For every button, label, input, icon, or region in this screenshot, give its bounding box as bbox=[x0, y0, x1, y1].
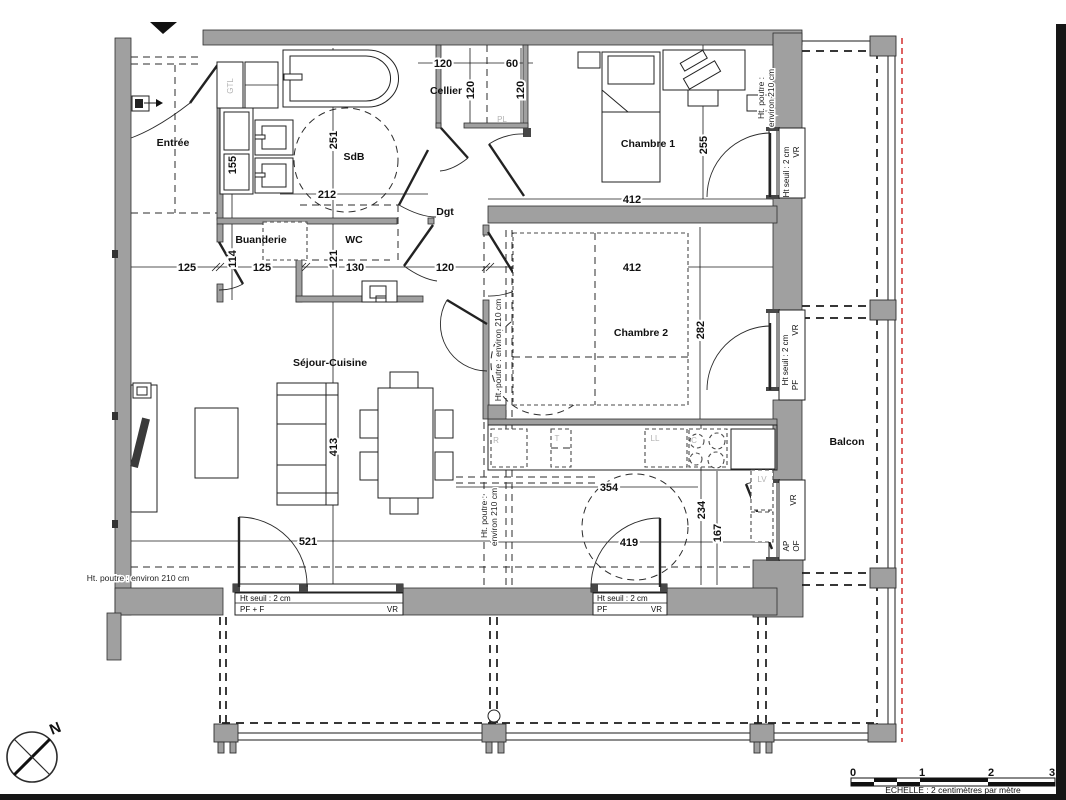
fridge-label: R bbox=[493, 436, 499, 445]
window3-of-label: OF bbox=[792, 540, 801, 551]
window3-ap-label: AP bbox=[782, 541, 791, 552]
dim-cellier-60: 60 bbox=[506, 58, 518, 70]
room-label-sejour: Séjour-Cuisine bbox=[293, 357, 367, 369]
sejour-window-sill-label: Ht seuil : 2 cm bbox=[240, 594, 291, 603]
dim-cellier-v1: 120 bbox=[465, 81, 477, 99]
doors bbox=[131, 63, 524, 371]
dim-entree-placard: 155 bbox=[227, 156, 239, 174]
cooktop-label: C bbox=[691, 436, 697, 445]
cuisine-window-type-label: PF bbox=[597, 605, 607, 614]
scale-bar: 0 1 2 3 ECHELLE : 2 centimètres par mètr… bbox=[850, 767, 1055, 795]
pl-label: PL bbox=[497, 115, 507, 124]
dim-sdb-depth: 251 bbox=[328, 131, 340, 149]
dim-cuisine-234: 234 bbox=[696, 500, 708, 519]
dim-buanderie-114: 114 bbox=[227, 249, 239, 268]
window-right-1: VR Ht seuil : 2 cm bbox=[707, 127, 805, 199]
entrance-arrow-icon bbox=[150, 22, 177, 34]
beam-note-ch1-l1: Ht. poutre : bbox=[756, 77, 766, 119]
gtl-label: GTL bbox=[226, 78, 235, 94]
room-label-chambre2: Chambre 2 bbox=[614, 327, 668, 339]
scale-caption: ECHELLE : 2 centimètres par mètre bbox=[885, 785, 1021, 795]
entry-symbol bbox=[132, 96, 163, 111]
chambre2-wardrobe-zone bbox=[513, 233, 688, 405]
beam-note-sejour: Ht. poutre : environ 210 cm bbox=[87, 573, 190, 583]
walls bbox=[107, 30, 803, 660]
entry-wardrobe bbox=[220, 108, 253, 194]
cuisine-window-vr-label: VR bbox=[651, 605, 662, 614]
dim-cuisine-354: 354 bbox=[600, 482, 619, 494]
dim-sdb-width: 212 bbox=[318, 189, 336, 201]
dim-ch2-width: 412 bbox=[623, 262, 641, 274]
room-label-chambre1: Chambre 1 bbox=[621, 138, 675, 150]
dim-cuisine-167: 167 bbox=[712, 524, 724, 542]
window3-vr-label: VR bbox=[789, 494, 798, 505]
chambre1-furniture bbox=[578, 48, 771, 182]
dim-ch2-depth: 282 bbox=[695, 321, 707, 339]
window-right-2: VR Ht seuil : 2 cm PF bbox=[707, 309, 805, 400]
scale-tick-3: 3 bbox=[1049, 767, 1055, 779]
dim-wc-121: 121 bbox=[328, 250, 340, 268]
floor-plan-page: VR Ht seuil : 2 cm VR Ht seuil : 2 cm PF… bbox=[0, 0, 1066, 800]
beam-note-cuisine-l1: Ht. poutre : bbox=[479, 496, 489, 538]
washer-label: LL bbox=[651, 434, 660, 443]
room-label-cellier: Cellier bbox=[430, 85, 462, 97]
compass-icon: N bbox=[7, 719, 64, 782]
north-label: N bbox=[47, 719, 63, 739]
beam-note-ch1-l2: environ 210 cm bbox=[766, 69, 776, 127]
beam-note-ch2: Ht. poutre : environ 210 cm bbox=[493, 299, 503, 402]
double-washbasin bbox=[255, 120, 293, 193]
dim-sejour-depth: 413 bbox=[328, 438, 340, 456]
sejour-window-type-label: PF + F bbox=[240, 605, 264, 614]
kitchen-sink bbox=[731, 429, 775, 469]
window-bottom-sejour: Ht seuil : 2 cm PF + F VR bbox=[233, 517, 403, 615]
room-label-sdb: SdB bbox=[344, 151, 365, 163]
window1-sill-label: Ht seuil : 2 cm bbox=[782, 146, 791, 197]
room-label-balcon: Balcon bbox=[829, 436, 864, 448]
window2-vr-label: VR bbox=[791, 324, 800, 335]
window2-sill-label: Ht seuil : 2 cm bbox=[781, 334, 790, 385]
sejour-window-vr-label: VR bbox=[387, 605, 398, 614]
sejour-furniture bbox=[130, 372, 453, 514]
room-label-wc: WC bbox=[345, 234, 363, 246]
dim-ch1-width: 412 bbox=[623, 194, 641, 206]
dim-row-130: 130 bbox=[346, 262, 364, 274]
dim-row-125b: 125 bbox=[253, 262, 271, 274]
scale-tick-2: 2 bbox=[988, 767, 994, 779]
dim-row-125a: 125 bbox=[178, 262, 196, 274]
floor-plan-drawing: VR Ht seuil : 2 cm VR Ht seuil : 2 cm PF… bbox=[0, 0, 1066, 800]
dim-row-120: 120 bbox=[436, 262, 454, 274]
dim-cellier-v2: 120 bbox=[515, 81, 527, 99]
window2-pf-label: PF bbox=[791, 380, 800, 390]
window1-vr-label: VR bbox=[792, 146, 801, 157]
toilet bbox=[362, 281, 397, 302]
gtl-closet: GTL bbox=[217, 62, 278, 108]
t-label: T bbox=[555, 434, 560, 443]
room-label-dgt: Dgt bbox=[436, 206, 454, 218]
dim-ch1-depth: 255 bbox=[698, 136, 710, 154]
scale-tick-0: 0 bbox=[850, 767, 856, 779]
dim-sejour-width: 521 bbox=[299, 536, 317, 548]
beam-note-cuisine-l2: environ 210 cm bbox=[489, 488, 499, 546]
dishwasher-label: LV bbox=[757, 475, 767, 484]
bathtub bbox=[283, 50, 399, 107]
room-label-entree: Entrée bbox=[157, 137, 190, 149]
scale-tick-1: 1 bbox=[919, 767, 925, 779]
dim-cellier-top: 120 bbox=[434, 58, 452, 70]
room-label-buanderie: Buanderie bbox=[235, 234, 287, 246]
dim-cuisine-419: 419 bbox=[620, 537, 638, 549]
cuisine-window-sill-label: Ht seuil : 2 cm bbox=[597, 594, 648, 603]
